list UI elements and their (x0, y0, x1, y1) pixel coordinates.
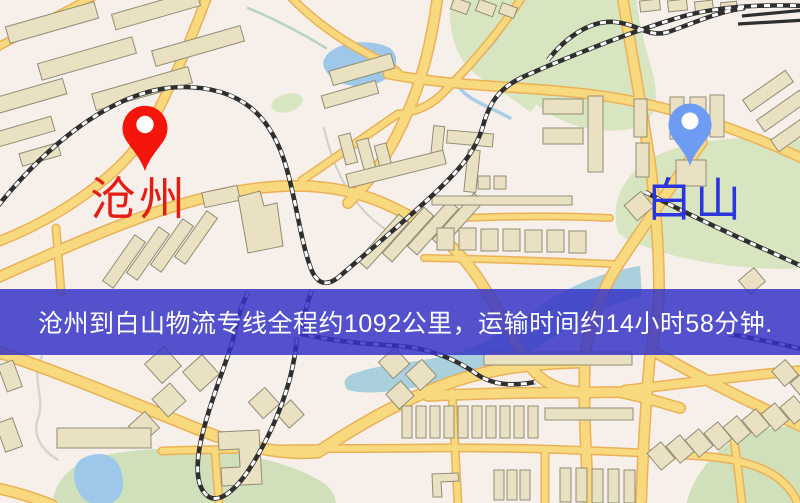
route-info-banner: 沧州到白山物流专线全程约1092公里，运输时间约14小时58分钟. (0, 289, 800, 355)
origin-label: 沧州 (90, 177, 188, 223)
destination-label: 白山 (646, 178, 744, 224)
route-info-text: 沧州到白山物流专线全程约1092公里，运输时间约14小时58分钟. (0, 304, 773, 340)
map-canvas: 沧州 白山 沧州到白山物流专线全程约1092公里，运输时间约14小时58分钟. (0, 0, 800, 503)
basemap (0, 0, 800, 503)
